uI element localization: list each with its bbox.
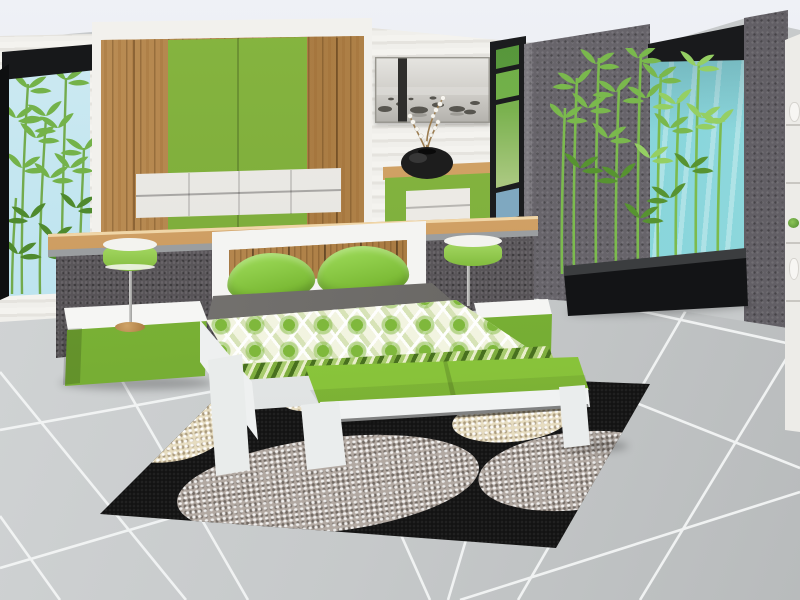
decor-plant (788, 218, 799, 228)
lamp-shade-rim (105, 264, 155, 270)
shelf (786, 242, 800, 244)
bedroom-render (0, 0, 800, 600)
artist-watermark (677, 537, 800, 587)
shelf (786, 124, 800, 126)
decor-vase (789, 102, 800, 122)
lamp-pole (467, 262, 470, 306)
shelf (786, 300, 800, 302)
shelf (786, 182, 800, 184)
lamp-pole (129, 270, 132, 328)
lamp-base (115, 322, 145, 332)
orchid-vase[interactable] (398, 88, 456, 180)
lamp-shade-top (444, 235, 502, 247)
bamboo-stalks (550, 48, 755, 274)
decor-vase (789, 258, 799, 280)
lamp-shade-top (103, 238, 157, 251)
